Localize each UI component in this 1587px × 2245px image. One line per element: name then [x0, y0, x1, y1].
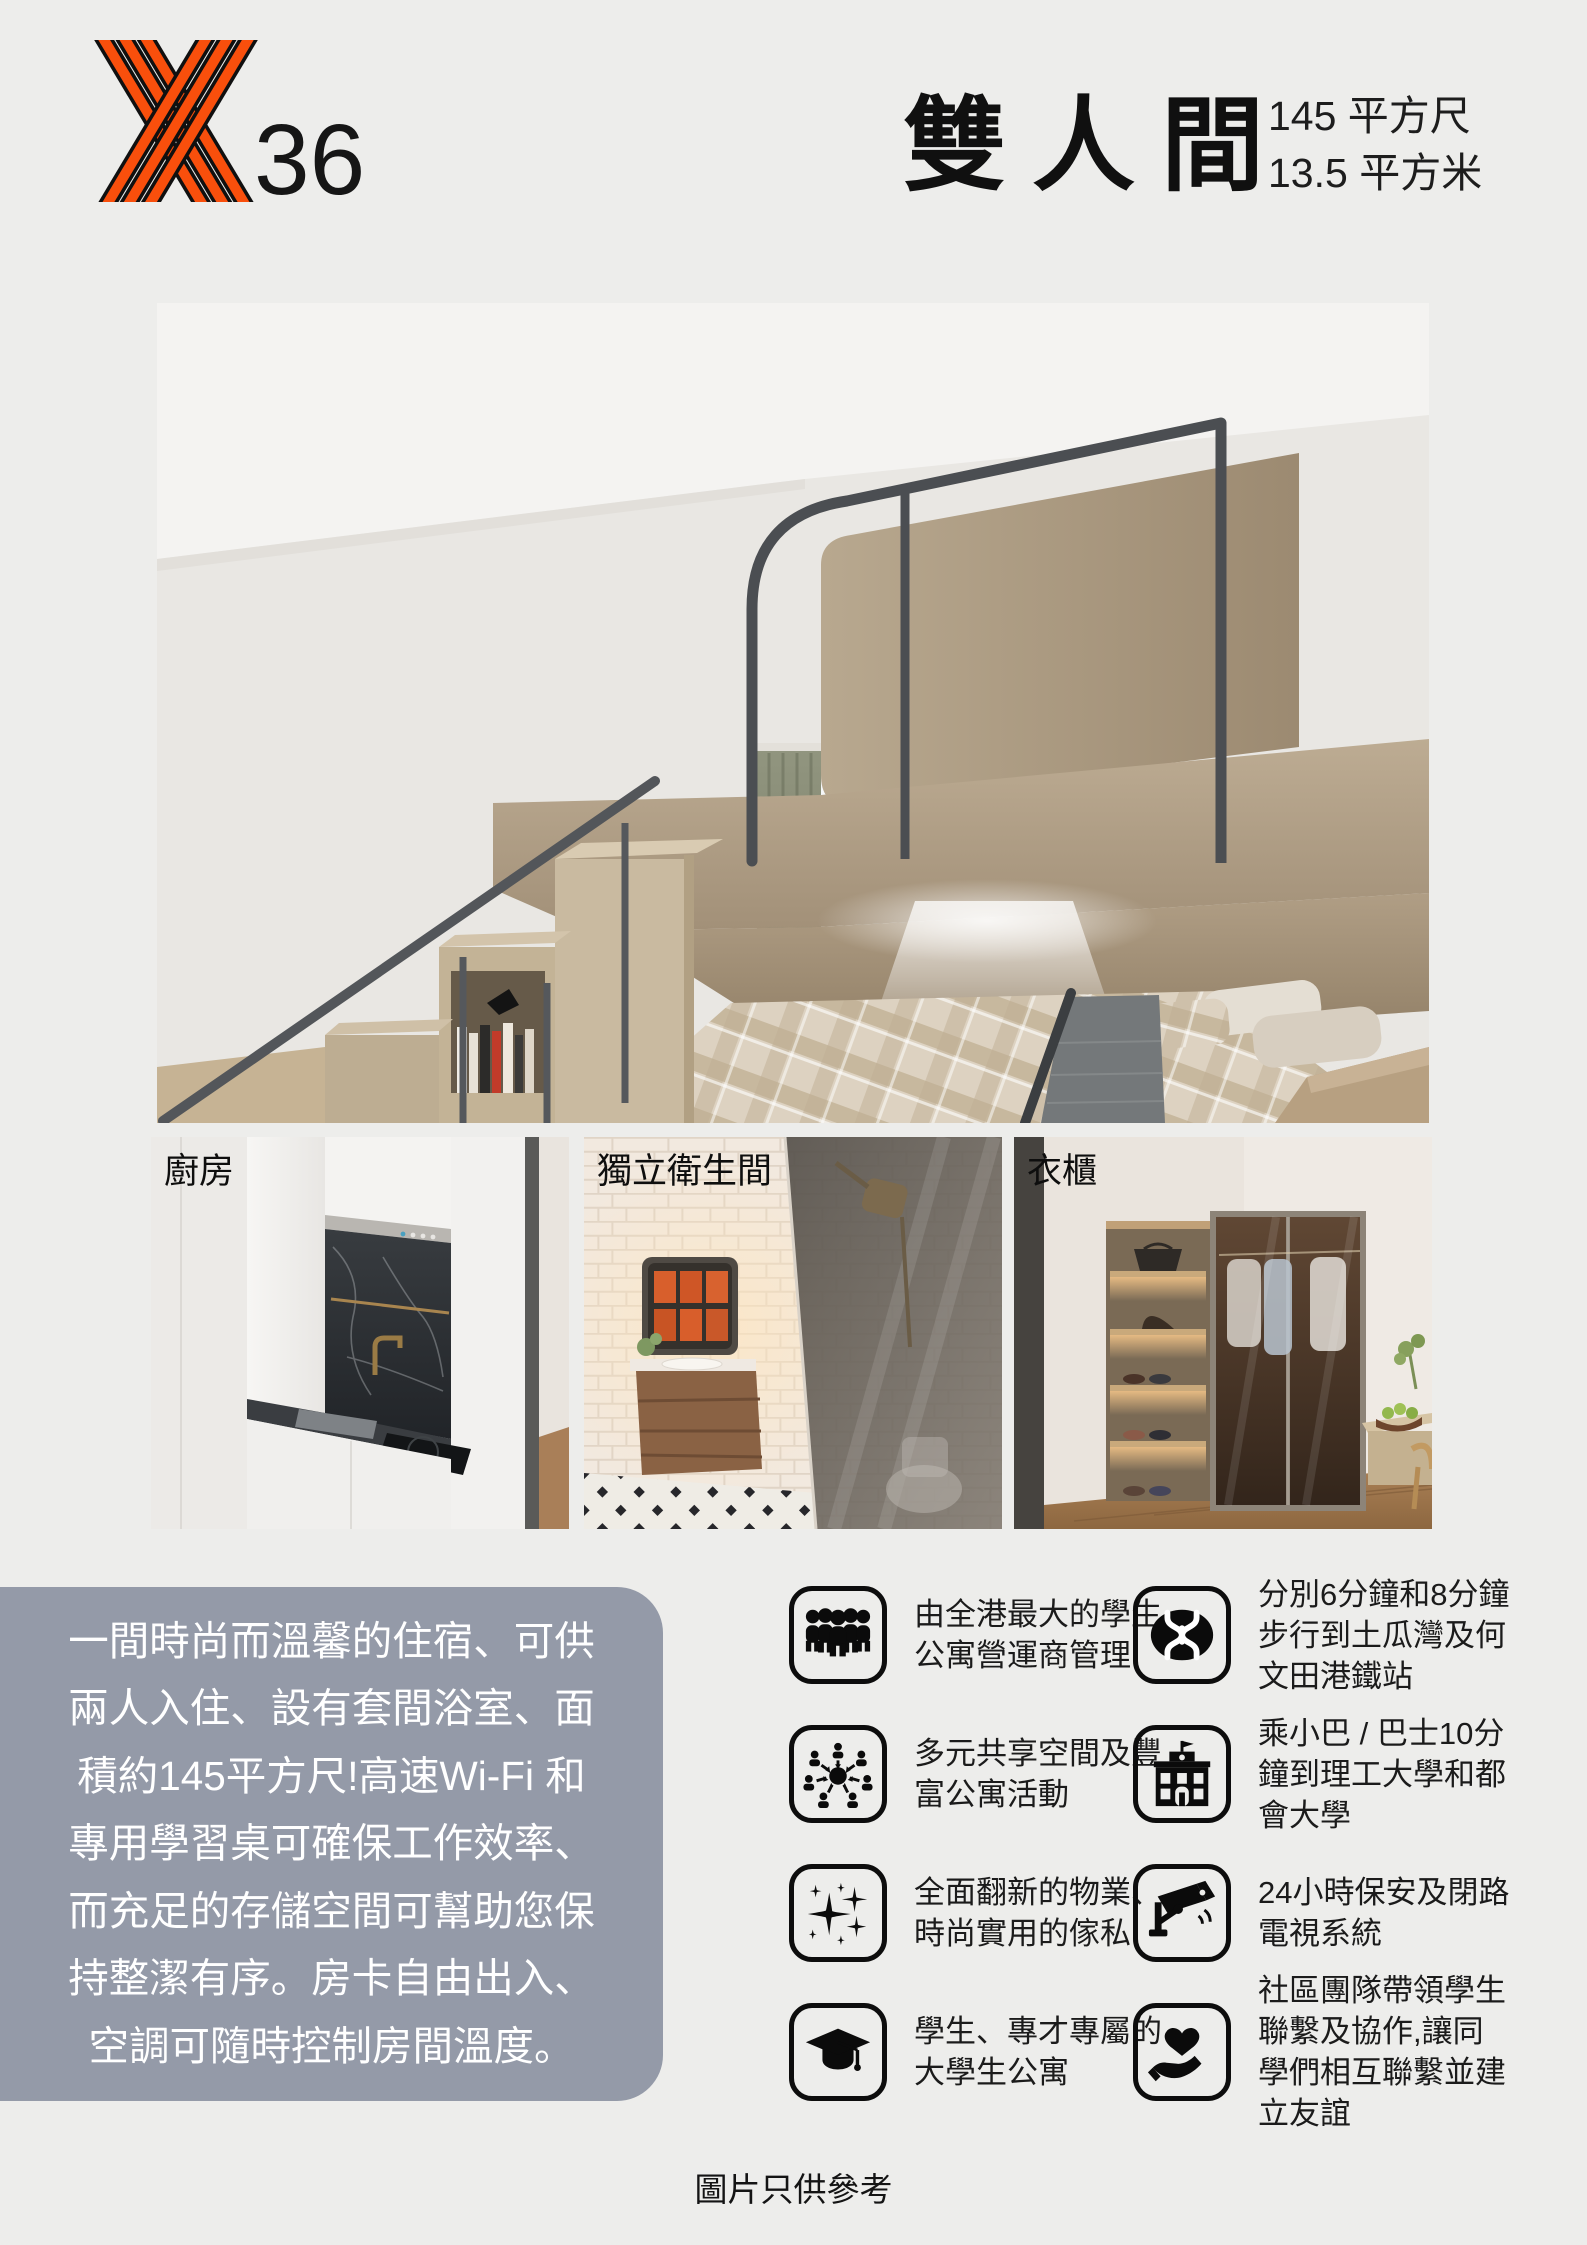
feature-shared-space: 多元共享空間及豐 富公寓活動 — [789, 1725, 1162, 1823]
kitchen-render — [151, 1137, 569, 1529]
bathroom-photo: 獨立衛生間 — [584, 1137, 1002, 1529]
footer-disclaimer: 圖片只供參考 — [0, 2163, 1587, 2211]
room-area-info: 145 平方尺 13.5 平方米 — [1268, 88, 1482, 202]
graduation-cap-icon — [789, 2003, 887, 2101]
sparkles-icon — [789, 1864, 887, 1962]
kitchen-photo: 廚房 — [151, 1137, 569, 1529]
feature-university: 乘小巴 / 巴士10分 鐘到理工大學和都 會大學 — [1133, 1725, 1506, 1823]
feature-security: 24小時保安及閉路 電視系統 — [1133, 1864, 1509, 1962]
area-sqft: 145 平方尺 — [1268, 93, 1471, 139]
area-sqm: 13.5 平方米 — [1268, 150, 1482, 196]
mtr-icon — [1133, 1586, 1231, 1684]
feature-operator: 由全港最大的學生 公寓營運商管理 — [789, 1586, 1162, 1684]
feature-community: 社區團隊帶領學生 聯繫及協作,讓同 學們相互聯繫並建 立友誼 — [1133, 2003, 1506, 2101]
flyer-page: 36 雙人間 145 平方尺 13.5 平方米 — [0, 0, 1587, 2245]
bathroom-render — [584, 1137, 1002, 1529]
wardrobe-render — [1014, 1137, 1432, 1529]
feature-mtr: 分別6分鐘和8分鐘 步行到土瓜灣及何 文田港鐵站 — [1133, 1586, 1509, 1684]
bathroom-label: 獨立衛生間 — [597, 1143, 772, 1194]
feature-community-text: 社區團隊帶領學生 聯繫及協作,讓同 學們相互聯繫並建 立友誼 — [1258, 1970, 1506, 2134]
community-share-icon — [789, 1725, 887, 1823]
feature-renovated-text: 全面翻新的物業、 時尚實用的傢私 — [914, 1872, 1162, 1954]
loft-room-photo — [157, 303, 1429, 1123]
logo-number: 36 — [254, 114, 365, 206]
kitchen-label: 廚房 — [164, 1143, 234, 1194]
y36-striped-y-icon — [92, 40, 260, 202]
page-title: 雙人間 — [903, 62, 1290, 211]
description-box: 一間時尚而溫馨的住宿、可供 兩人入住、設有套間浴室、面 積約145平方尺!高速W… — [0, 1587, 663, 2101]
wardrobe-photo: 衣櫃 — [1014, 1137, 1432, 1529]
feature-security-text: 24小時保安及閉路 電視系統 — [1258, 1872, 1509, 1954]
feature-student-only: 學生、專才專屬的 大學生公寓 — [789, 2003, 1162, 2101]
wardrobe-label: 衣櫃 — [1027, 1143, 1097, 1194]
feature-renovated: 全面翻新的物業、 時尚實用的傢私 — [789, 1864, 1162, 1962]
feature-mtr-text: 分別6分鐘和8分鐘 步行到土瓜灣及何 文田港鐵站 — [1258, 1574, 1509, 1697]
heart-hand-icon — [1133, 2003, 1231, 2101]
feature-shared-space-text: 多元共享空間及豐 富公寓活動 — [914, 1733, 1162, 1815]
feature-university-text: 乘小巴 / 巴士10分 鐘到理工大學和都 會大學 — [1258, 1713, 1506, 1836]
people-group-icon — [789, 1586, 887, 1684]
feature-student-only-text: 學生、專才專屬的 大學生公寓 — [914, 2011, 1162, 2093]
cctv-camera-icon — [1133, 1864, 1231, 1962]
y36-logo: 36 — [92, 40, 365, 202]
feature-operator-text: 由全港最大的學生 公寓營運商管理 — [914, 1594, 1162, 1676]
school-building-icon — [1133, 1725, 1231, 1823]
loft-room-render — [157, 303, 1429, 1123]
